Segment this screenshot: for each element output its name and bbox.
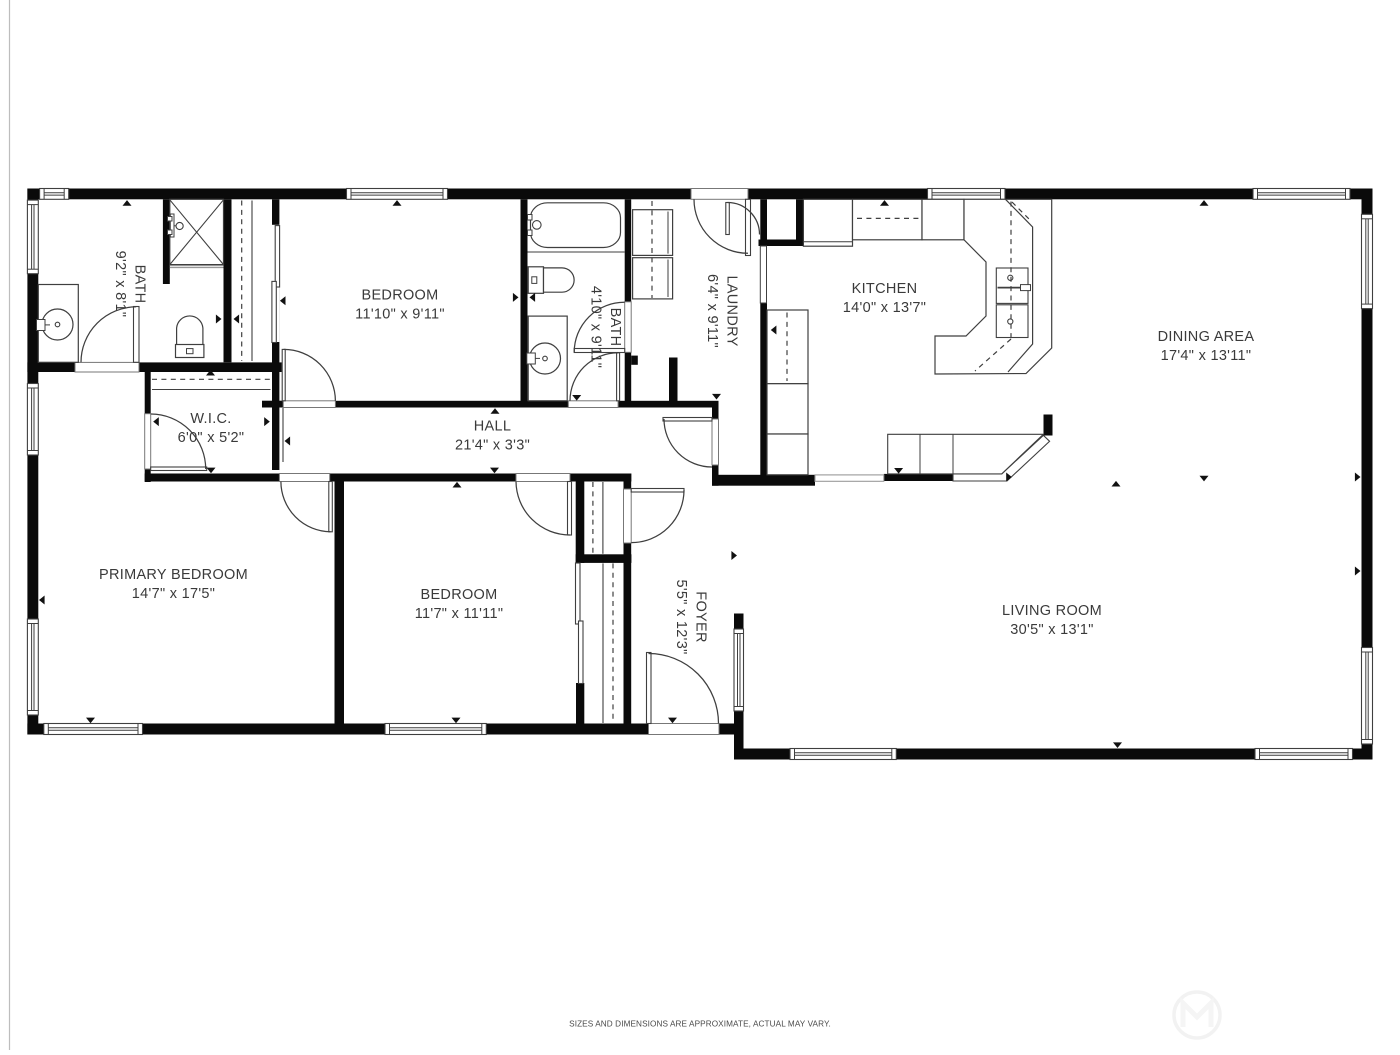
svg-text:HALL: HALL	[474, 419, 511, 435]
svg-text:9'2" x 8'1": 9'2" x 8'1"	[112, 251, 128, 318]
svg-text:30'5" x 13'1": 30'5" x 13'1"	[1010, 622, 1093, 638]
svg-text:6'0" x 5'2": 6'0" x 5'2"	[178, 430, 245, 446]
svg-text:14'7" x 17'5": 14'7" x 17'5"	[132, 586, 215, 602]
svg-text:5'5" x 12'3": 5'5" x 12'3"	[673, 579, 689, 654]
svg-text:14'0" x 13'7": 14'0" x 13'7"	[843, 300, 926, 316]
svg-text:BATH: BATH	[132, 265, 148, 304]
svg-text:17'4" x 13'11": 17'4" x 13'11"	[1161, 348, 1252, 364]
svg-text:PRIMARY BEDROOM: PRIMARY BEDROOM	[99, 567, 248, 583]
svg-text:LAUNDRY: LAUNDRY	[724, 275, 740, 346]
svg-text:21'4" x 3'3": 21'4" x 3'3"	[455, 437, 530, 453]
svg-text:6'4" x 9'11": 6'4" x 9'11"	[704, 274, 720, 348]
svg-text:LIVING ROOM: LIVING ROOM	[1002, 603, 1102, 619]
svg-text:BATH: BATH	[607, 308, 623, 347]
svg-text:4'10" x 9'11": 4'10" x 9'11"	[587, 286, 603, 368]
svg-text:SIZES AND DIMENSIONS ARE APPRO: SIZES AND DIMENSIONS ARE APPROXIMATE, AC…	[569, 1020, 831, 1029]
svg-text:DINING AREA: DINING AREA	[1158, 329, 1255, 345]
svg-text:W.I.C.: W.I.C.	[190, 411, 231, 427]
svg-text:FOYER: FOYER	[693, 591, 709, 642]
svg-text:11'7" x 11'11": 11'7" x 11'11"	[415, 606, 504, 622]
svg-text:BEDROOM: BEDROOM	[361, 288, 438, 304]
svg-text:11'10" x 9'11": 11'10" x 9'11"	[355, 306, 445, 322]
svg-text:KITCHEN: KITCHEN	[852, 281, 918, 297]
svg-text:BEDROOM: BEDROOM	[420, 587, 497, 603]
